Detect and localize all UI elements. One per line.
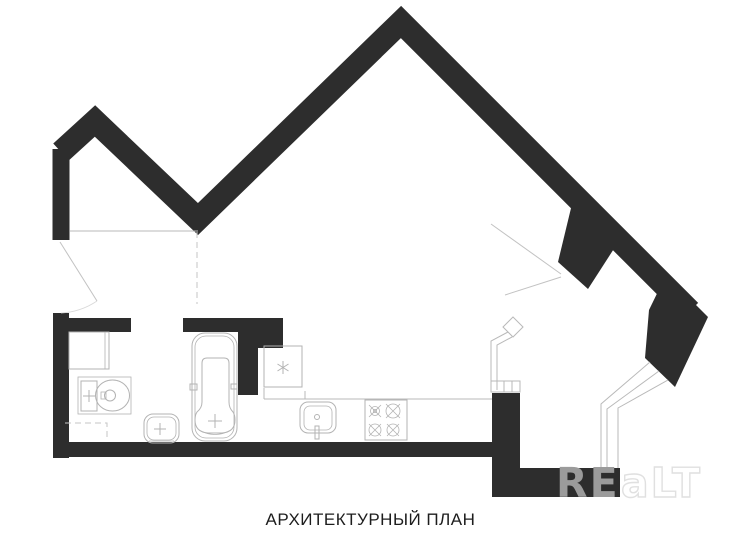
- entry-door: [60, 242, 97, 313]
- zone-break-lines: [65, 231, 198, 441]
- entry-door-swing-arc: [61, 301, 97, 313]
- balcony-door-swing-line: [491, 224, 561, 274]
- toilet-icon: [78, 377, 131, 414]
- window-glazing-line-3: [618, 380, 668, 468]
- kitchen-sink-icon: [300, 402, 336, 439]
- bathroom-top-wall-right: [183, 318, 283, 395]
- kitchen-counter: [264, 388, 492, 399]
- window-post: [503, 317, 523, 337]
- bathroom-sink-icon: [144, 414, 179, 443]
- watermark-logo: RE aLT: [556, 459, 702, 507]
- refrigerator-snowflake-icon: [264, 346, 302, 387]
- bay-window-right: [601, 362, 668, 468]
- window-glazing-line-2: [607, 371, 659, 468]
- exterior-walls: [53, 22, 708, 497]
- left-lower-wall: [53, 313, 69, 458]
- entry-door-leaf: [60, 242, 97, 301]
- floor-plan-canvas: RE aLT АРХИТЕКТУРНЫЙ ПЛАН: [0, 0, 741, 540]
- snowflake-icon: [278, 361, 289, 374]
- stove-burner-icon: [369, 424, 381, 436]
- bathtub-icon: [190, 333, 237, 441]
- bottom-wall: [53, 442, 492, 457]
- plan-caption: АРХИТЕКТУРНЫЙ ПЛАН: [0, 510, 741, 530]
- floor-plan-drawing: RE aLT: [0, 0, 741, 540]
- balcony-door: [491, 224, 561, 295]
- washing-machine-icon: [69, 332, 109, 369]
- watermark-solid-text: RE: [556, 459, 620, 507]
- stove-icon: [365, 400, 407, 440]
- bay-window-left: [491, 317, 523, 392]
- stove-burner-icon: [386, 404, 400, 418]
- watermark-outline-text: aLT: [621, 459, 702, 507]
- window-sill: [491, 381, 520, 392]
- bathroom-top-wall-left: [69, 318, 131, 332]
- window-sill-box: [504, 381, 512, 392]
- balcony-door-leaf: [505, 277, 561, 295]
- window-glazing-line-1: [601, 362, 650, 468]
- right-corner-wall: [645, 275, 708, 387]
- stove-burner-icon: [369, 405, 381, 417]
- bathroom-dashed-line: [65, 423, 107, 441]
- stove-burner-icon: [387, 424, 399, 436]
